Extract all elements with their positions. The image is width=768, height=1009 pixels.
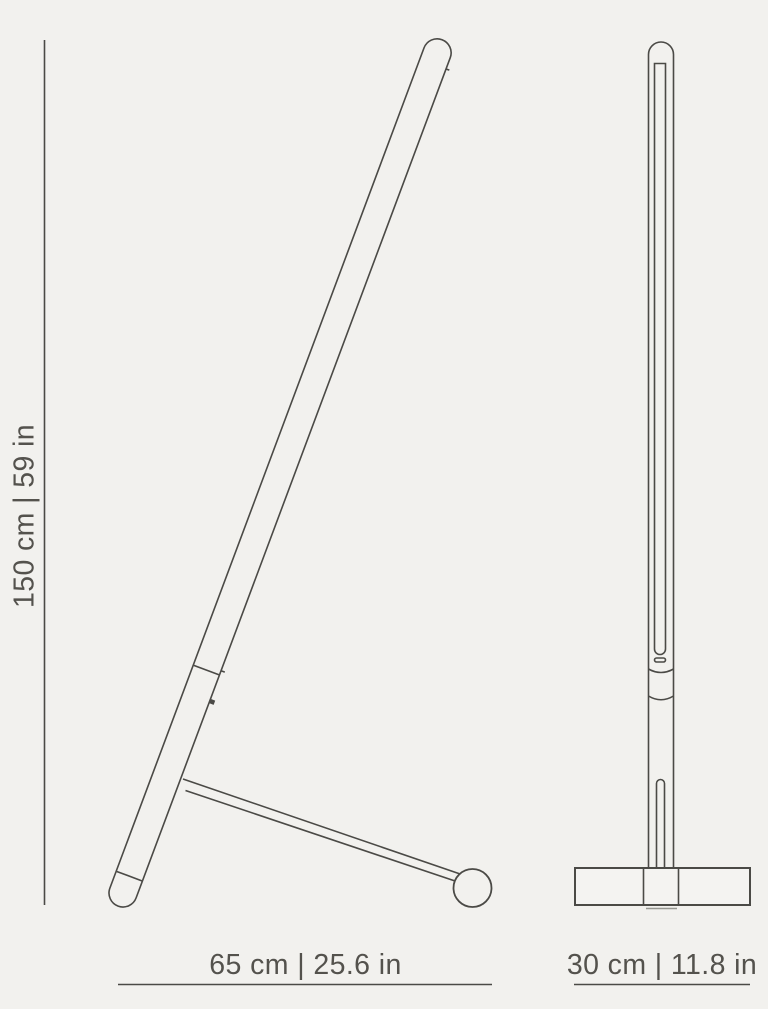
lamp-dimension-diagram: 150 cm | 59 in 65 cm | 25.6 in 30 cm | 1…: [0, 0, 768, 1009]
lamp-groove-step-top: [446, 69, 449, 70]
front-tube-outline: [649, 42, 674, 868]
front-switch-bar: [655, 658, 666, 662]
lamp-support-leg: [183, 779, 492, 907]
front-stem-slot: [657, 780, 665, 869]
height-dimension-label: 150 cm | 59 in: [9, 424, 41, 608]
lamp-tube-outline: [105, 35, 455, 911]
width-dimension-label: 30 cm | 11.8 in: [567, 949, 757, 981]
front-led-window: [655, 64, 666, 655]
front-joint-arc-thin: [649, 669, 674, 673]
lamp-mid-joint-line: [194, 665, 219, 674]
front-joint-arc-thick: [649, 696, 674, 700]
lamp-side-view: [105, 35, 460, 913]
lamp-groove-step: [221, 671, 225, 672]
front-base: [575, 868, 750, 905]
leg-ball-foot: [454, 869, 492, 907]
leg-bottom-edge: [186, 791, 465, 885]
lamp-front-view: [575, 42, 750, 909]
depth-dimension-label: 65 cm | 25.6 in: [209, 949, 401, 981]
lamp-foot-joint-line: [117, 871, 142, 880]
dimension-diagram-page: 150 cm | 59 in 65 cm | 25.6 in 30 cm | 1…: [0, 0, 768, 1009]
leg-top-edge: [183, 779, 466, 876]
